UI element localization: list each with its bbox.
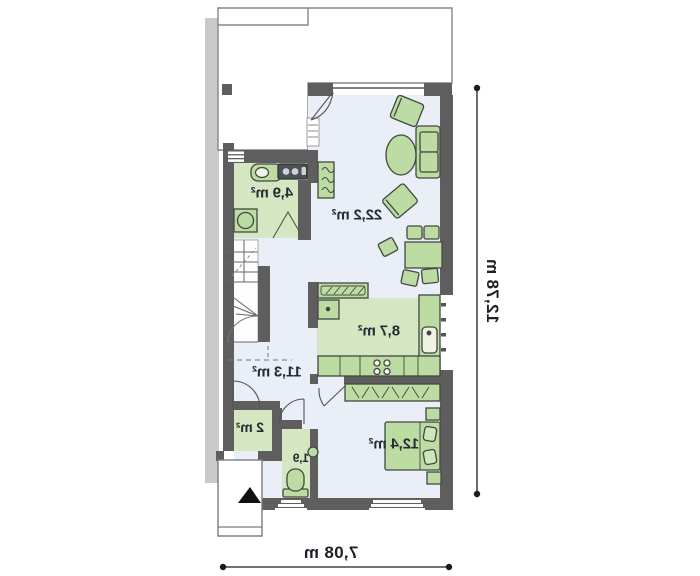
living-room-area-label: 22,2 m² — [332, 207, 382, 224]
bathroom-vent-window — [228, 152, 244, 162]
hall-area-label: 11,3 m² — [252, 364, 301, 381]
stair-wall — [258, 266, 270, 342]
hand-basin — [308, 447, 318, 457]
bathroom-right-wall-b — [298, 180, 311, 240]
overall-depth-label: 12,78 m — [482, 259, 502, 323]
closet-area-label: 2 m² — [236, 419, 264, 435]
coffee-table — [386, 135, 416, 175]
nightstand — [426, 408, 440, 420]
top-pier-right — [424, 83, 452, 96]
wc-area-label: 1,9 — [293, 451, 309, 465]
wardrobe — [345, 384, 440, 401]
boundary-pier — [222, 84, 232, 95]
living-window — [307, 118, 319, 146]
kitchen-area-label: 8,7 m² — [358, 323, 400, 340]
sofa — [416, 126, 440, 178]
bathroom-area-label: 4,9 m² — [251, 185, 293, 202]
party-wall — [205, 18, 219, 483]
washing-machine — [234, 209, 257, 232]
dining-chair — [401, 269, 420, 286]
sink-tap — [427, 331, 431, 335]
overall-width-label: 7,08 m — [304, 543, 359, 563]
wc-top-wall — [280, 420, 302, 429]
kitchen-bedroom-wall-a — [310, 374, 318, 384]
dining-chair — [424, 226, 439, 239]
floor-plan-page: 22,2 m² 4,9 m² 8,7 m² 11,3 m² 2 m² 1,9 1… — [0, 0, 700, 576]
dining-chair — [421, 268, 438, 284]
top-pier-left — [308, 83, 333, 96]
nightstand — [427, 472, 441, 484]
vanity-cabinet — [278, 164, 307, 179]
cabinet-knob — [326, 307, 329, 310]
wc-right-wall — [310, 429, 318, 500]
bedroom-area-label: 12,4 m² — [369, 436, 419, 453]
dining-chair — [407, 226, 422, 239]
dining-table — [405, 242, 442, 268]
right-wall-bottom — [440, 370, 453, 510]
kitchen-stub-wall — [308, 282, 318, 328]
porch — [218, 460, 262, 536]
rear-steps-bedroom — [369, 500, 425, 511]
floor-plan-drawing — [0, 0, 700, 576]
radiator — [318, 162, 334, 198]
bathroom-right-wall-a — [307, 150, 318, 183]
